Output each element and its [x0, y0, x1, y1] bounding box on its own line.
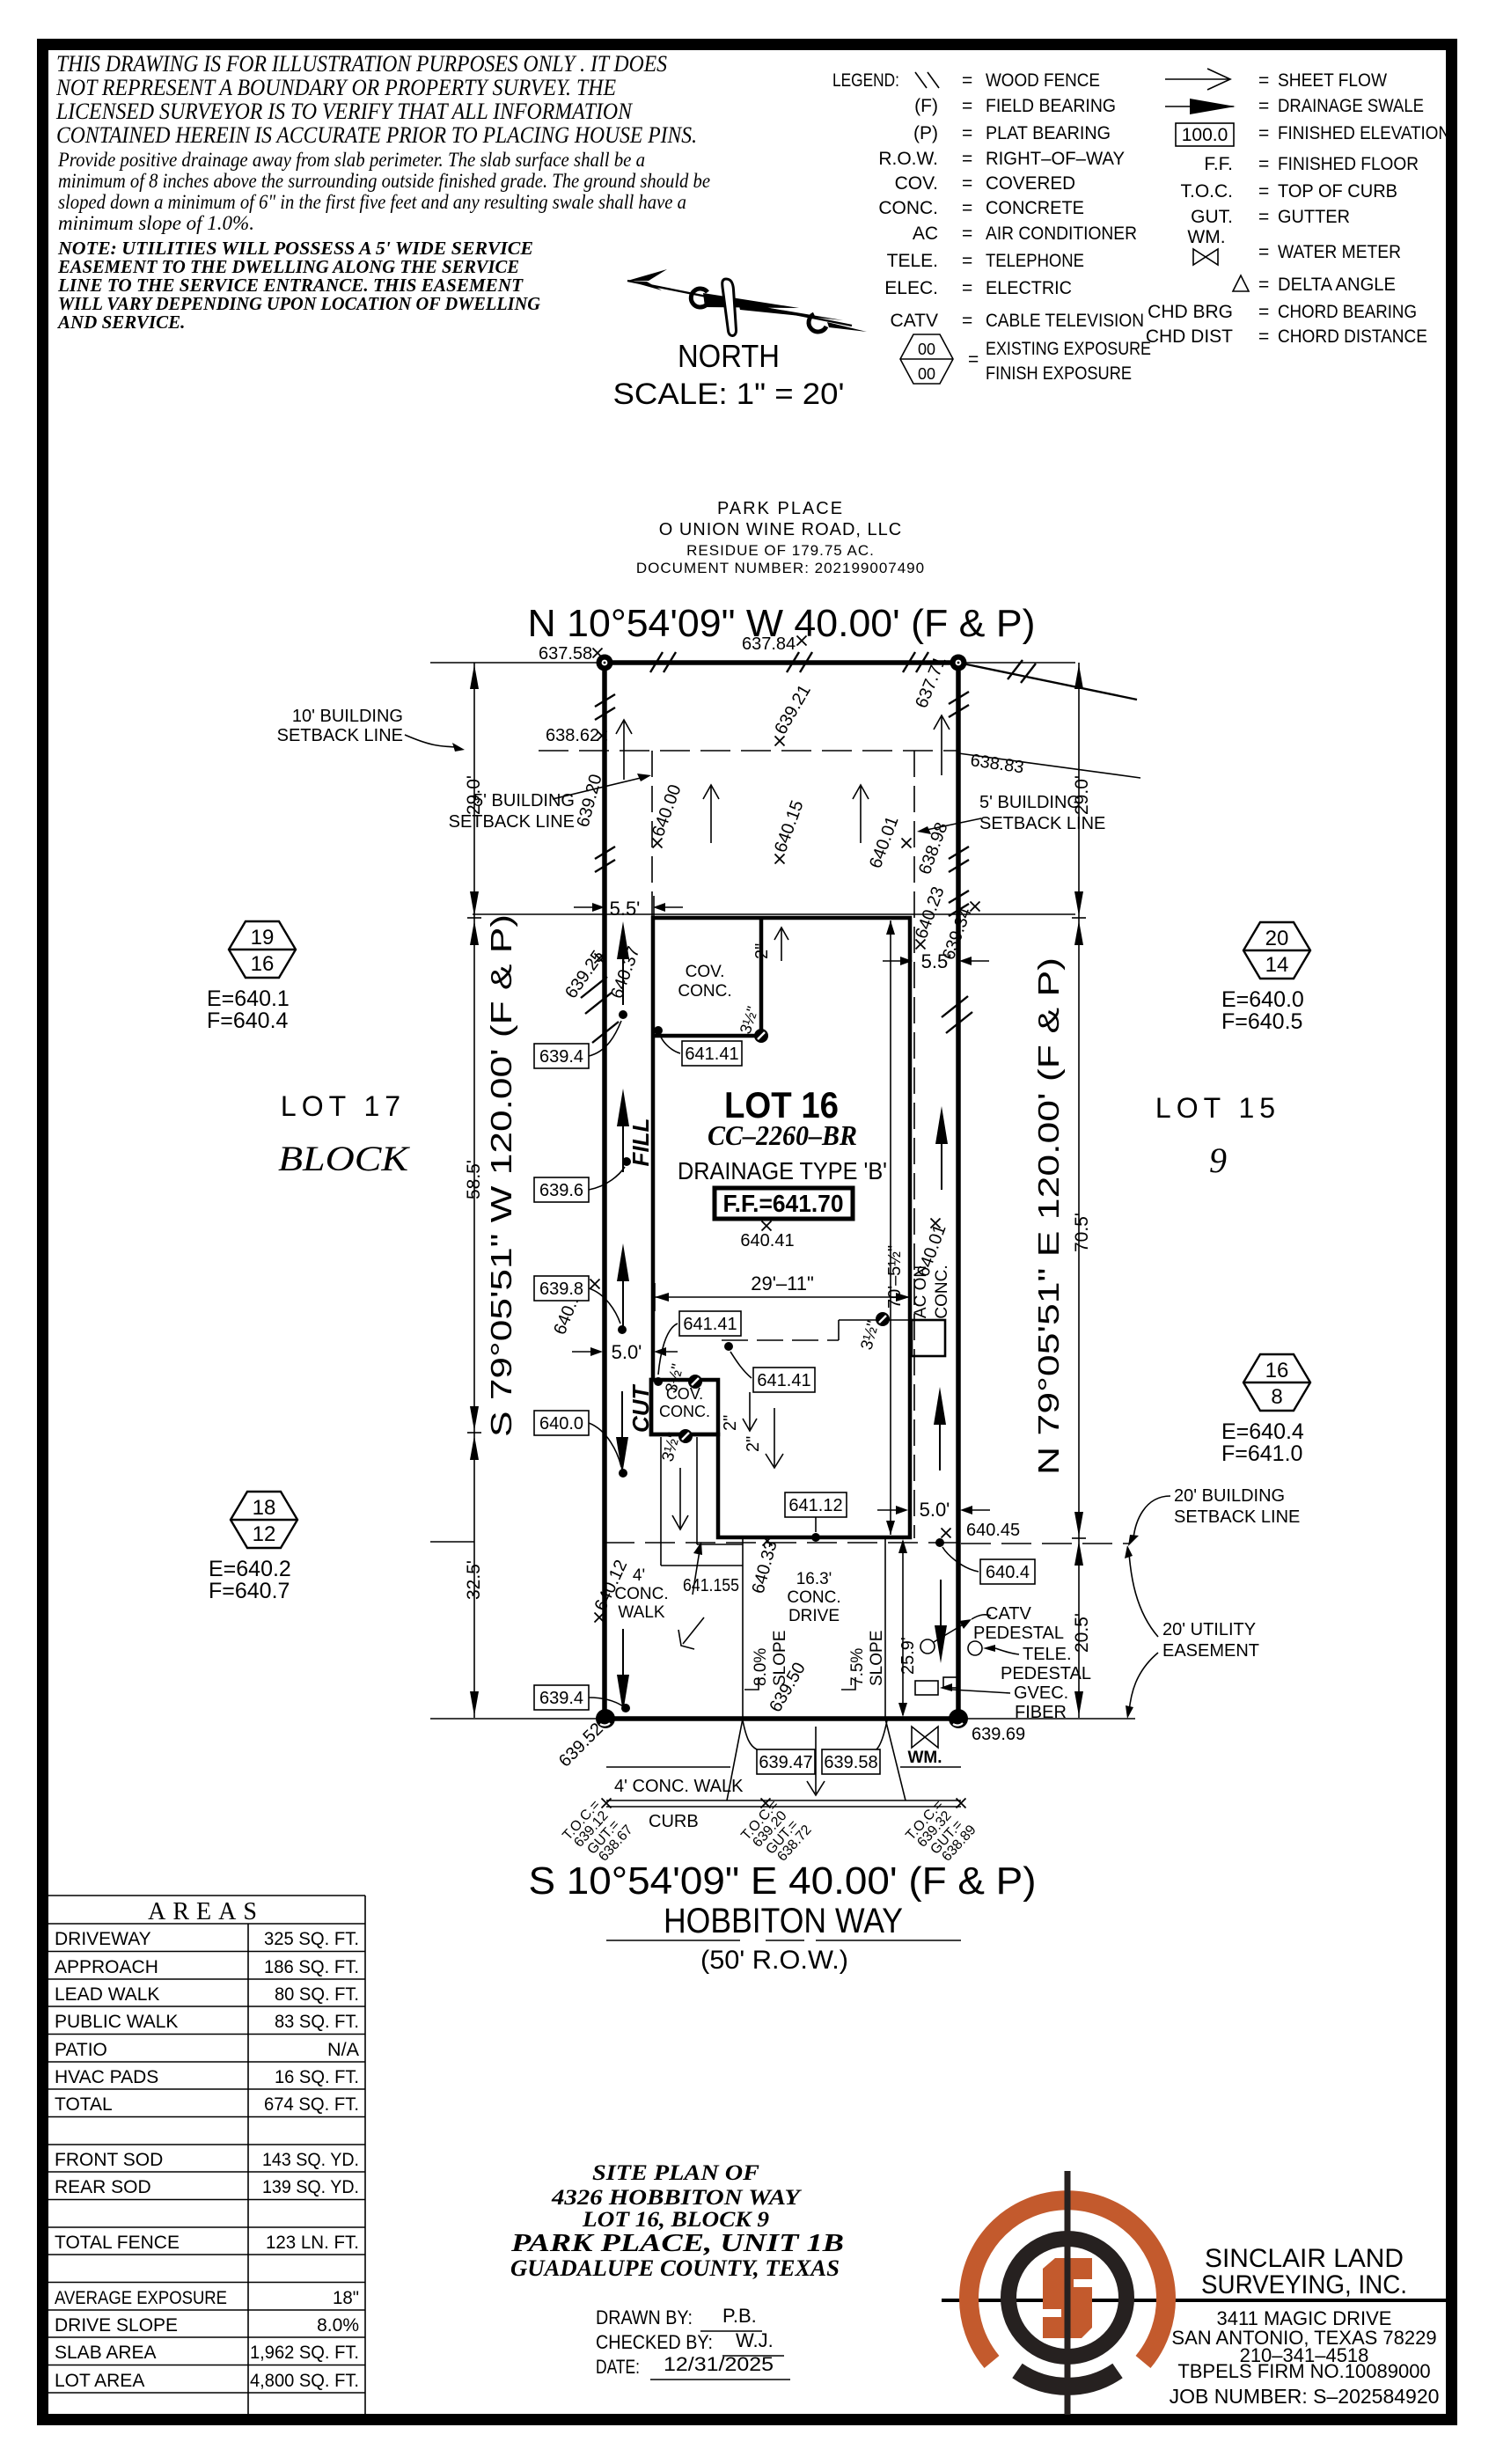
svg-text:WALK: WALK [618, 1603, 664, 1622]
svg-text:sloped down a minimum of 6" in: sloped down a minimum of 6" in the first… [58, 191, 686, 213]
svg-text:83 SQ. FT.: 83 SQ. FT. [275, 2012, 359, 2032]
svg-text:CABLE TELEVISION: CABLE TELEVISION [986, 311, 1144, 331]
svg-text:TBPELS FIRM NO.10089000: TBPELS FIRM NO.10089000 [1177, 2360, 1430, 2382]
svg-text:CONC.: CONC. [878, 198, 938, 218]
svg-text:E=640.2: E=640.2 [209, 1557, 291, 1581]
svg-text:ELECTRIC: ELECTRIC [986, 278, 1072, 298]
svg-text:TELEPHONE: TELEPHONE [986, 251, 1084, 271]
svg-text:TOTAL: TOTAL [55, 2094, 113, 2115]
svg-text:=: = [962, 123, 972, 143]
svg-text:O UNION WINE ROAD, LLC: O UNION WINE ROAD, LLC [659, 520, 902, 539]
svg-text:=: = [1258, 123, 1269, 143]
svg-text:=: = [962, 251, 972, 271]
svg-text:AC: AC [913, 224, 938, 244]
svg-text:(P): (P) [913, 123, 938, 143]
svg-text:70.5': 70.5' [1072, 1213, 1092, 1252]
svg-text:REAR SOD: REAR SOD [55, 2177, 151, 2197]
svg-text:CATV: CATV [891, 311, 938, 331]
svg-text:FINISHED FLOOR: FINISHED FLOOR [1278, 154, 1419, 174]
svg-text:12: 12 [253, 1522, 276, 1546]
svg-text:WM.: WM. [907, 1749, 942, 1767]
svg-text:PUBLIC WALK: PUBLIC WALK [55, 2012, 178, 2032]
svg-text:12/31/2025: 12/31/2025 [664, 2353, 774, 2375]
svg-text:JOB NUMBER: S–202584920: JOB NUMBER: S–202584920 [1170, 2385, 1440, 2408]
svg-text:N/A: N/A [327, 2040, 359, 2060]
svg-text:20' UTILITY: 20' UTILITY [1162, 1620, 1256, 1639]
svg-text:5.0': 5.0' [920, 1499, 950, 1521]
svg-text:16: 16 [1265, 1359, 1289, 1382]
svg-text:16 SQ. FT.: 16 SQ. FT. [275, 2067, 359, 2087]
svg-text:S 10°54'09" E 40.00' (F & P): S 10°54'09" E 40.00' (F & P) [529, 1859, 1037, 1903]
svg-text:=: = [1258, 70, 1269, 91]
svg-text:100.0: 100.0 [1182, 125, 1228, 145]
svg-text:F=640.4: F=640.4 [207, 1008, 289, 1033]
svg-text:CATV: CATV [986, 1604, 1032, 1624]
svg-text:TOTAL FENCE: TOTAL FENCE [55, 2233, 180, 2253]
svg-text:=: = [1258, 302, 1269, 322]
svg-text:00: 00 [918, 341, 935, 358]
svg-text:LICENSED SURVEYOR IS TO VERIFY: LICENSED SURVEYOR IS TO VERIFY THAT ALL … [55, 99, 633, 124]
svg-text:DRAINAGE SWALE: DRAINAGE SWALE [1278, 96, 1424, 116]
svg-text:SITE PLAN OF: SITE PLAN OF [592, 2161, 759, 2185]
svg-text:F.F.=641.70: F.F.=641.70 [723, 1190, 844, 1217]
svg-text:SLAB AREA: SLAB AREA [55, 2343, 157, 2363]
svg-text:AREAS: AREAS [148, 1898, 264, 1925]
svg-text:641.41: 641.41 [757, 1371, 810, 1390]
svg-text:4,800 SQ. FT.: 4,800 SQ. FT. [250, 2371, 359, 2391]
svg-text:GUTTER: GUTTER [1278, 207, 1350, 227]
svg-text:=: = [962, 198, 972, 218]
svg-text:25.9': 25.9' [898, 1637, 918, 1675]
svg-text:NORTH: NORTH [678, 338, 780, 374]
svg-text:=: = [962, 173, 972, 194]
svg-text:10' BUILDING: 10' BUILDING [292, 707, 403, 726]
svg-text:638.62: 638.62 [546, 726, 599, 745]
svg-text:SLOPE: SLOPE [868, 1631, 886, 1686]
svg-text:GVEC.: GVEC. [1014, 1683, 1068, 1703]
svg-text:640.4: 640.4 [986, 1563, 1030, 1582]
svg-text:16.3': 16.3' [796, 1570, 832, 1588]
svg-text:HVAC PADS: HVAC PADS [55, 2067, 158, 2087]
svg-text:PLAT BEARING: PLAT BEARING [986, 123, 1111, 143]
svg-text:COVERED: COVERED [986, 173, 1075, 194]
svg-text:LOT 15: LOT 15 [1155, 1092, 1280, 1124]
svg-text:SURVEYING, INC.: SURVEYING, INC. [1201, 2270, 1407, 2299]
svg-text:EXISTING EXPOSURE: EXISTING EXPOSURE [986, 339, 1151, 359]
svg-text:PEDESTAL: PEDESTAL [973, 1624, 1064, 1643]
svg-text:5.0': 5.0' [612, 1341, 642, 1363]
svg-text:LOT 16, BLOCK 9: LOT 16, BLOCK 9 [582, 2208, 770, 2232]
svg-text:SETBACK LINE: SETBACK LINE [1174, 1507, 1300, 1527]
svg-text:29.0': 29.0' [1072, 775, 1092, 815]
svg-text:S 79°05'51" W 120.00' (F & P): S 79°05'51" W 120.00' (F & P) [485, 914, 517, 1437]
svg-text:20: 20 [1265, 927, 1289, 950]
svg-text:COV.: COV. [686, 963, 725, 981]
svg-text:GUADALUPE COUNTY, TEXAS: GUADALUPE COUNTY, TEXAS [510, 2255, 840, 2281]
svg-text:PATIO: PATIO [55, 2040, 107, 2060]
svg-text:7.5%: 7.5% [848, 1648, 867, 1686]
svg-text:SETBACK LINE: SETBACK LINE [277, 726, 403, 745]
svg-text:=: = [1258, 275, 1269, 295]
svg-text:=: = [962, 70, 972, 91]
svg-text:GUT.: GUT. [1191, 207, 1233, 227]
svg-text:9: 9 [1209, 1140, 1227, 1180]
svg-text:THIS DRAWING IS FOR ILLUSTRATI: THIS DRAWING IS FOR ILLUSTRATION PURPOSE… [56, 51, 667, 77]
svg-text:CHD BRG: CHD BRG [1148, 302, 1233, 322]
svg-text:(50' R.O.W.): (50' R.O.W.) [700, 1946, 848, 1975]
svg-text:FINISH EXPOSURE: FINISH EXPOSURE [986, 363, 1132, 384]
svg-text:4326 HOBBITON WAY: 4326 HOBBITON WAY [551, 2186, 803, 2210]
svg-text:=: = [1258, 326, 1269, 347]
svg-text:=: = [962, 224, 972, 244]
svg-text:639.6: 639.6 [539, 1181, 583, 1200]
svg-text:TOP OF CURB: TOP OF CURB [1278, 181, 1397, 202]
svg-text:29.0': 29.0' [464, 775, 484, 815]
svg-text:HOBBITON WAY: HOBBITON WAY [664, 1902, 903, 1940]
svg-text:CHORD DISTANCE: CHORD DISTANCE [1278, 326, 1427, 347]
svg-text:640.0: 640.0 [539, 1414, 583, 1434]
svg-text:=: = [1258, 207, 1269, 227]
svg-text:639.47: 639.47 [759, 1753, 812, 1772]
svg-text:4': 4' [633, 1566, 645, 1585]
svg-text:641.155: 641.155 [683, 1576, 739, 1595]
svg-text:PARK PLACE, UNIT 1B: PARK PLACE, UNIT 1B [510, 2229, 844, 2257]
svg-text:DRIVEWAY: DRIVEWAY [55, 1929, 151, 1949]
svg-text:SLOPE: SLOPE [771, 1631, 789, 1686]
svg-text:DRAWN BY:: DRAWN BY: [596, 2306, 693, 2328]
svg-text:AND SERVICE.: AND SERVICE. [56, 312, 185, 333]
svg-text:29'–11": 29'–11" [751, 1272, 814, 1294]
svg-text:641.41: 641.41 [685, 1045, 738, 1064]
svg-text:640.45: 640.45 [966, 1521, 1020, 1540]
svg-text:N 79°05'51" E 120.00' (F & P): N 79°05'51" E 120.00' (F & P) [1032, 957, 1065, 1475]
svg-text:APPROACH: APPROACH [55, 1957, 158, 1977]
svg-text:143 SQ. YD.: 143 SQ. YD. [262, 2150, 359, 2170]
svg-text:COV.: COV. [895, 173, 938, 194]
svg-text:CHORD BEARING: CHORD BEARING [1278, 302, 1417, 322]
svg-text:RESIDUE OF 179.75 AC.: RESIDUE OF 179.75 AC. [686, 542, 875, 559]
svg-text:=: = [968, 349, 979, 370]
svg-text:639.58: 639.58 [824, 1753, 877, 1772]
svg-text:T.O.C.: T.O.C. [1180, 181, 1233, 202]
svg-text:FILL: FILL [627, 1118, 654, 1167]
svg-text:WOOD FENCE: WOOD FENCE [986, 70, 1100, 91]
svg-text:639.4: 639.4 [539, 1689, 583, 1708]
svg-text:639.4: 639.4 [539, 1047, 583, 1067]
svg-text:TELE.: TELE. [1023, 1645, 1072, 1664]
svg-text:18: 18 [253, 1496, 276, 1520]
svg-text:639.69: 639.69 [972, 1725, 1025, 1744]
svg-text:Provide positive drainage away: Provide positive drainage away from slab… [57, 149, 645, 171]
svg-text:F=641.0: F=641.0 [1221, 1441, 1302, 1466]
svg-text:CONC.: CONC. [678, 982, 731, 1001]
svg-text:640.41: 640.41 [740, 1231, 794, 1250]
svg-text:641.41: 641.41 [683, 1315, 737, 1334]
svg-text:325 SQ. FT.: 325 SQ. FT. [264, 1929, 359, 1949]
svg-text:P.B.: P.B. [722, 2305, 757, 2327]
svg-text:CONTAINED HEREIN IS ACCURATE P: CONTAINED HEREIN IS ACCURATE PRIOR TO PL… [56, 122, 697, 148]
svg-text:00: 00 [918, 365, 935, 383]
svg-text:637.58: 637.58 [539, 644, 592, 664]
svg-text:=: = [1258, 181, 1269, 202]
svg-text:F.F.: F.F. [1204, 154, 1233, 174]
svg-text:CUT: CUT [627, 1383, 654, 1433]
svg-text:DRIVE: DRIVE [788, 1607, 840, 1625]
svg-text:2": 2" [744, 1436, 763, 1452]
svg-text:=: = [1258, 96, 1269, 116]
svg-text:TELE.: TELE. [887, 251, 938, 271]
svg-text:14: 14 [1265, 953, 1289, 977]
svg-text:186 SQ. FT.: 186 SQ. FT. [264, 1957, 359, 1977]
svg-text:RIGHT–OF–WAY: RIGHT–OF–WAY [986, 149, 1125, 169]
svg-text:FIELD BEARING: FIELD BEARING [986, 96, 1116, 116]
svg-text:DATE:: DATE: [596, 2356, 640, 2378]
svg-text:SCALE: 1" = 20': SCALE: 1" = 20' [613, 378, 845, 411]
svg-text:CONC.: CONC. [659, 1403, 710, 1420]
svg-text:80 SQ. FT.: 80 SQ. FT. [275, 1984, 359, 2005]
svg-text:BLOCK: BLOCK [278, 1139, 411, 1178]
svg-text:CHD DIST: CHD DIST [1146, 326, 1233, 347]
svg-text:FIBER: FIBER [1015, 1703, 1067, 1722]
svg-text:FRONT SOD: FRONT SOD [55, 2150, 163, 2170]
svg-text:W.J.: W.J. [736, 2329, 774, 2351]
svg-text:=: = [1258, 154, 1269, 174]
svg-text:32.5': 32.5' [464, 1560, 484, 1600]
svg-text:20.5': 20.5' [1072, 1613, 1092, 1653]
svg-text:F=640.7: F=640.7 [209, 1579, 290, 1603]
svg-text:R.O.W.: R.O.W. [878, 149, 938, 169]
svg-text:18": 18" [333, 2288, 359, 2308]
svg-text:LEGEND:: LEGEND: [832, 70, 899, 91]
svg-text:CONC.: CONC. [933, 1265, 951, 1318]
svg-text:16: 16 [251, 952, 275, 976]
svg-text:CURB: CURB [649, 1812, 699, 1831]
svg-text:2": 2" [721, 1415, 740, 1431]
svg-text:EASEMENT: EASEMENT [1162, 1641, 1259, 1661]
svg-text:FINISHED ELEVATION: FINISHED ELEVATION [1278, 123, 1450, 143]
svg-text:CC–2260–BR: CC–2260–BR [708, 1119, 857, 1151]
svg-text:F=640.5: F=640.5 [1221, 1009, 1302, 1034]
svg-text:674 SQ. FT.: 674 SQ. FT. [264, 2094, 359, 2115]
svg-text:(F): (F) [914, 96, 938, 116]
svg-text:5.5': 5.5' [610, 898, 641, 920]
svg-text:SINCLAIR LAND: SINCLAIR LAND [1205, 2244, 1404, 2273]
svg-text:8.0%: 8.0% [317, 2315, 359, 2336]
svg-text:minimum slope of 1.0%.: minimum slope of 1.0%. [58, 212, 254, 234]
svg-text:58.5': 58.5' [464, 1160, 484, 1199]
svg-text:AVERAGE EXPOSURE: AVERAGE EXPOSURE [55, 2288, 227, 2308]
svg-text:=: = [962, 149, 972, 169]
svg-text:8.0%: 8.0% [752, 1648, 770, 1686]
svg-text:DOCUMENT NUMBER: 202199007490: DOCUMENT NUMBER: 202199007490 [636, 560, 925, 576]
svg-text:CONC.: CONC. [614, 1585, 668, 1603]
svg-text:E=640.4: E=640.4 [1221, 1419, 1304, 1444]
svg-text:DRAINAGE TYPE 'B': DRAINAGE TYPE 'B' [678, 1157, 887, 1184]
svg-text:WM.: WM. [1187, 227, 1225, 247]
svg-text:CONCRETE: CONCRETE [986, 198, 1084, 218]
svg-text:LOT AREA: LOT AREA [55, 2371, 144, 2391]
svg-text:=: = [1258, 242, 1269, 262]
svg-text:DRIVE SLOPE: DRIVE SLOPE [55, 2315, 178, 2336]
svg-text:19: 19 [251, 926, 275, 950]
svg-text:=: = [962, 96, 972, 116]
svg-text:639.8: 639.8 [539, 1280, 583, 1299]
svg-text:=: = [962, 311, 972, 331]
svg-text:=: = [962, 278, 972, 298]
svg-text:70'–5½": 70'–5½" [885, 1245, 905, 1309]
svg-text:SHEET FLOW: SHEET FLOW [1278, 70, 1387, 91]
svg-text:123 LN. FT.: 123 LN. FT. [266, 2233, 359, 2253]
svg-text:1,962 SQ. FT.: 1,962 SQ. FT. [250, 2343, 359, 2363]
svg-text:LOT 17: LOT 17 [281, 1090, 406, 1122]
svg-text:DELTA ANGLE: DELTA ANGLE [1278, 275, 1396, 295]
svg-text:AIR CONDITIONER: AIR CONDITIONER [986, 224, 1137, 244]
svg-text:5' BUILDING: 5' BUILDING [473, 791, 575, 810]
svg-text:20' BUILDING: 20' BUILDING [1174, 1486, 1285, 1506]
svg-text:5' BUILDING: 5' BUILDING [979, 793, 1081, 812]
svg-text:minimum of 8 inches above the: minimum of 8 inches above the surroundin… [58, 170, 710, 192]
svg-text:NOT REPRESENT A BOUNDARY OR PR: NOT REPRESENT A BOUNDARY OR PROPERTY SUR… [55, 75, 616, 100]
svg-text:LEAD WALK: LEAD WALK [55, 1984, 159, 2005]
svg-text:E=640.1: E=640.1 [207, 986, 290, 1011]
svg-text:641.12: 641.12 [788, 1496, 842, 1515]
svg-text:139 SQ. YD.: 139 SQ. YD. [262, 2177, 359, 2197]
svg-text:CONC.: CONC. [787, 1588, 840, 1607]
svg-text:4' CONC. WALK: 4' CONC. WALK [614, 1777, 744, 1796]
svg-text:2": 2" [752, 943, 772, 959]
svg-text:ELEC.: ELEC. [884, 278, 938, 298]
svg-text:637.84: 637.84 [742, 634, 796, 654]
svg-text:CHECKED BY:: CHECKED BY: [596, 2331, 713, 2353]
svg-text:WATER METER: WATER METER [1278, 242, 1401, 262]
svg-text:E=640.0: E=640.0 [1221, 987, 1304, 1012]
svg-text:PEDESTAL: PEDESTAL [1001, 1664, 1091, 1683]
svg-text:PARK PLACE: PARK PLACE [717, 499, 844, 518]
svg-text:SETBACK LINE: SETBACK LINE [979, 814, 1105, 833]
svg-text:8: 8 [1271, 1385, 1282, 1409]
